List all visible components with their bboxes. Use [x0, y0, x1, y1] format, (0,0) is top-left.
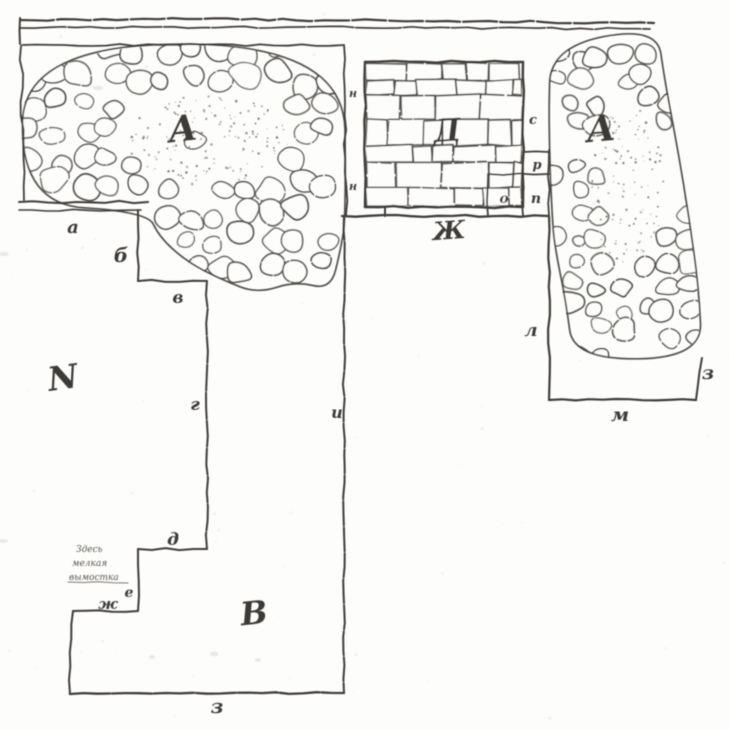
- label-wall-Zh: Ж: [430, 215, 468, 246]
- label-point-r: р: [532, 158, 541, 173]
- label-point-a: а: [67, 217, 79, 238]
- label-point-l: л: [524, 320, 537, 341]
- label-area-A-right: А: [581, 107, 617, 152]
- label-point-v: в: [172, 288, 183, 308]
- label-point-e: е: [125, 585, 134, 601]
- label-point-zh: ж: [98, 595, 118, 613]
- label-point-s: с: [529, 113, 537, 128]
- scanned-plan-page: А А Д В N Ж а б в г д е ж з и л м н н о …: [0, 0, 729, 730]
- label-area-N: N: [44, 356, 82, 399]
- label-point-g: г: [190, 395, 200, 415]
- label-point-z-right: з: [702, 362, 714, 384]
- label-point-o: о: [499, 191, 508, 207]
- label-point-b: б: [114, 243, 128, 267]
- annotation-line-2: мелкая: [72, 559, 107, 569]
- label-point-m: м: [611, 404, 629, 426]
- label-area-B: В: [237, 593, 269, 634]
- label-point-i: и: [331, 403, 343, 422]
- masonry-texture: [9, 33, 705, 364]
- label-area-A-left: А: [163, 107, 200, 152]
- label-point-n-lower: н: [349, 180, 357, 193]
- annotation-line-3: вымостка: [69, 573, 119, 583]
- label-area-D: Д: [430, 112, 463, 150]
- excavation-plan-drawing: А А Д В N Ж а б в г д е ж з и л м н н о …: [0, 0, 729, 730]
- annotation-line-1: Здесь: [76, 545, 103, 555]
- label-point-d: д: [167, 530, 179, 550]
- label-point-n-upper: н: [349, 87, 357, 100]
- label-point-p: п: [531, 191, 541, 207]
- label-point-z: з: [211, 694, 224, 718]
